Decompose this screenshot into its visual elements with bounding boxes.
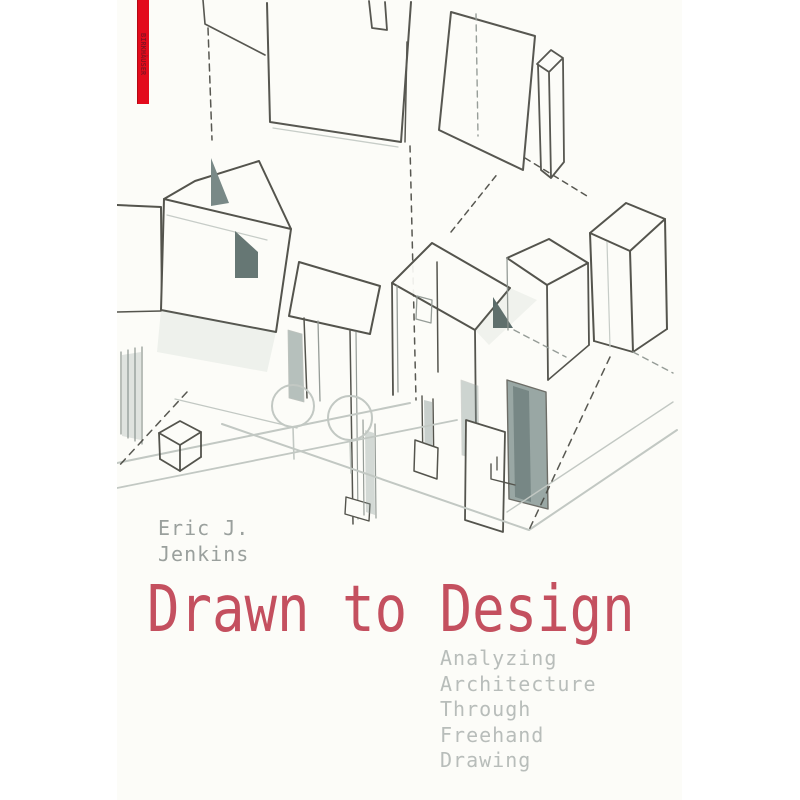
author-line1: Eric J.: [158, 516, 249, 540]
sketch-middle-cluster: [288, 262, 380, 524]
sketch-left-building: [117, 158, 291, 444]
screenshot: BIRKHÄUSER Eric J.Jenkins Drawn to Desig…: [0, 0, 800, 800]
book-subtitle: Analyzing Architecture Through Freehand …: [440, 646, 597, 774]
subtitle-line: Drawing: [440, 748, 597, 774]
book-cover: BIRKHÄUSER Eric J.Jenkins Drawn to Desig…: [117, 0, 682, 800]
author-line2: Jenkins: [158, 542, 249, 566]
subtitle-line: Through: [440, 697, 597, 723]
subtitle-line: Analyzing: [440, 646, 597, 672]
book-title: Drawn to Design: [147, 578, 635, 642]
sketch-small-cube: [159, 421, 201, 471]
author-name: Eric J.Jenkins: [158, 515, 249, 567]
publisher-name: BIRKHÄUSER: [139, 33, 147, 75]
cover-illustration: [117, 0, 682, 545]
publisher-bar: BIRKHÄUSER: [137, 0, 149, 104]
subtitle-line: Architecture: [440, 672, 597, 698]
subtitle-line: Freehand: [440, 723, 597, 749]
